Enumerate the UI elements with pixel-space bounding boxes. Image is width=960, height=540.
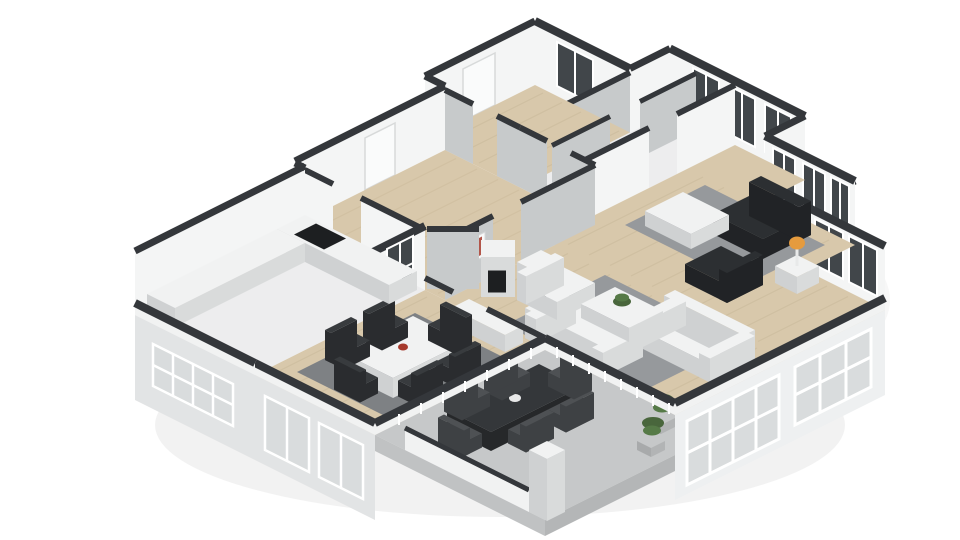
dining-chair-6-b-se — [360, 370, 366, 403]
outdoor-chair-6-b-se — [464, 428, 470, 457]
red-centerpiece — [398, 344, 408, 351]
outdoor-chair-3-b-sw — [560, 404, 566, 433]
outdoor-chair-4-b-sw — [520, 424, 526, 453]
dining-chair-5-b-se — [466, 315, 472, 348]
patio-plant-2 — [643, 426, 661, 436]
dark-lounge-chair-back-sw — [719, 269, 727, 303]
patio-pillar-se — [547, 450, 565, 521]
fireplace-top — [481, 240, 515, 257]
white-armchair-back-sw — [517, 272, 526, 305]
patio-pillar-sw — [529, 450, 547, 521]
kitchen-corner-joint — [295, 163, 305, 168]
dining-chair-2-b-sw — [325, 330, 331, 363]
orange-lamp — [789, 237, 805, 250]
firebox-opening — [488, 271, 506, 293]
dark-armchair-back-se — [799, 201, 811, 241]
coffee-table-plant — [615, 294, 629, 302]
floorplan-3d-render — [0, 0, 960, 540]
floorplan-stage: 3D isometric floor plan rendering of a s… — [0, 0, 960, 540]
